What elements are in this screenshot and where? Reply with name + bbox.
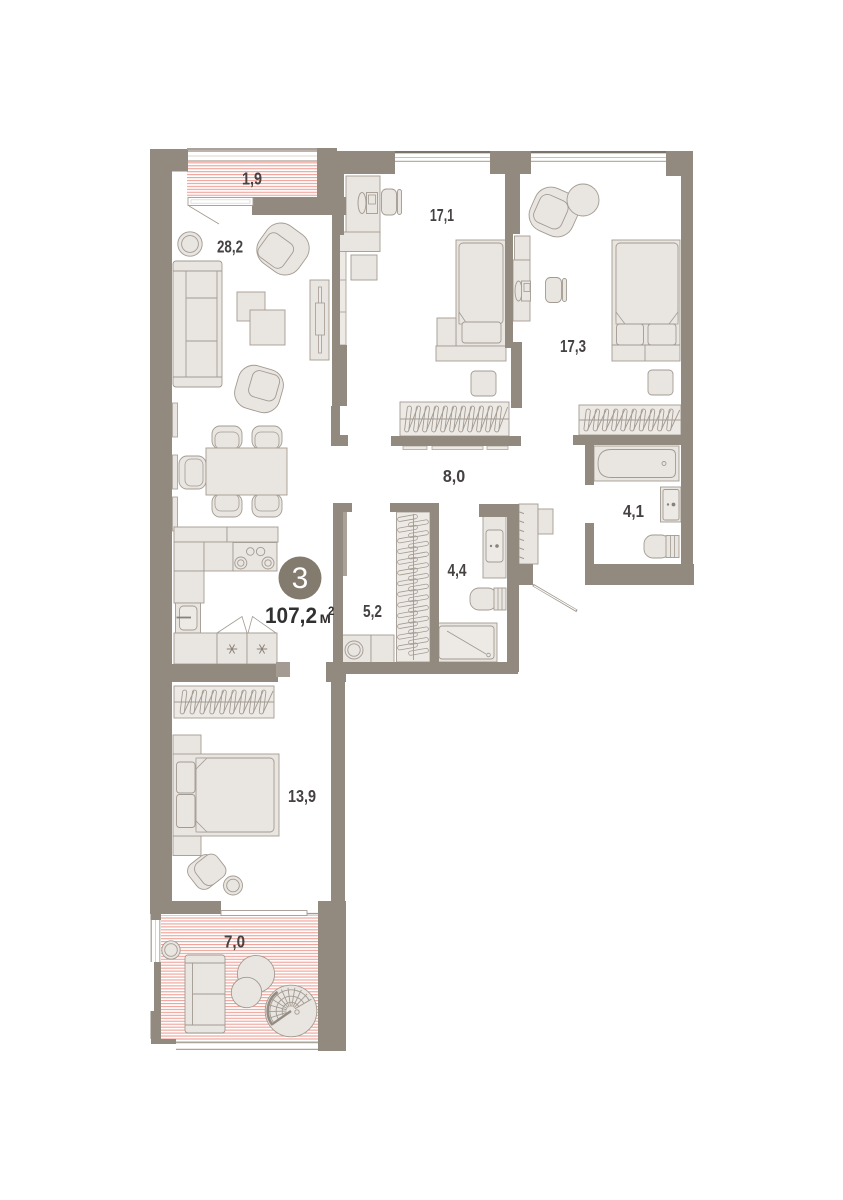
svg-text:7,0: 7,0 xyxy=(224,932,245,952)
svg-text:5,2: 5,2 xyxy=(363,601,382,621)
svg-text:8,0: 8,0 xyxy=(443,466,466,486)
svg-text:28,2: 28,2 xyxy=(217,237,243,257)
svg-text:1,9: 1,9 xyxy=(242,169,262,189)
svg-text:13,9: 13,9 xyxy=(288,786,316,806)
svg-text:3: 3 xyxy=(292,562,309,595)
svg-text:17,3: 17,3 xyxy=(560,336,586,356)
svg-text:4,1: 4,1 xyxy=(623,501,644,521)
svg-text:107,2: 107,2 xyxy=(265,603,317,628)
svg-text:17,1: 17,1 xyxy=(430,205,454,225)
svg-text:4,4: 4,4 xyxy=(448,560,467,580)
svg-text:2: 2 xyxy=(328,606,334,618)
